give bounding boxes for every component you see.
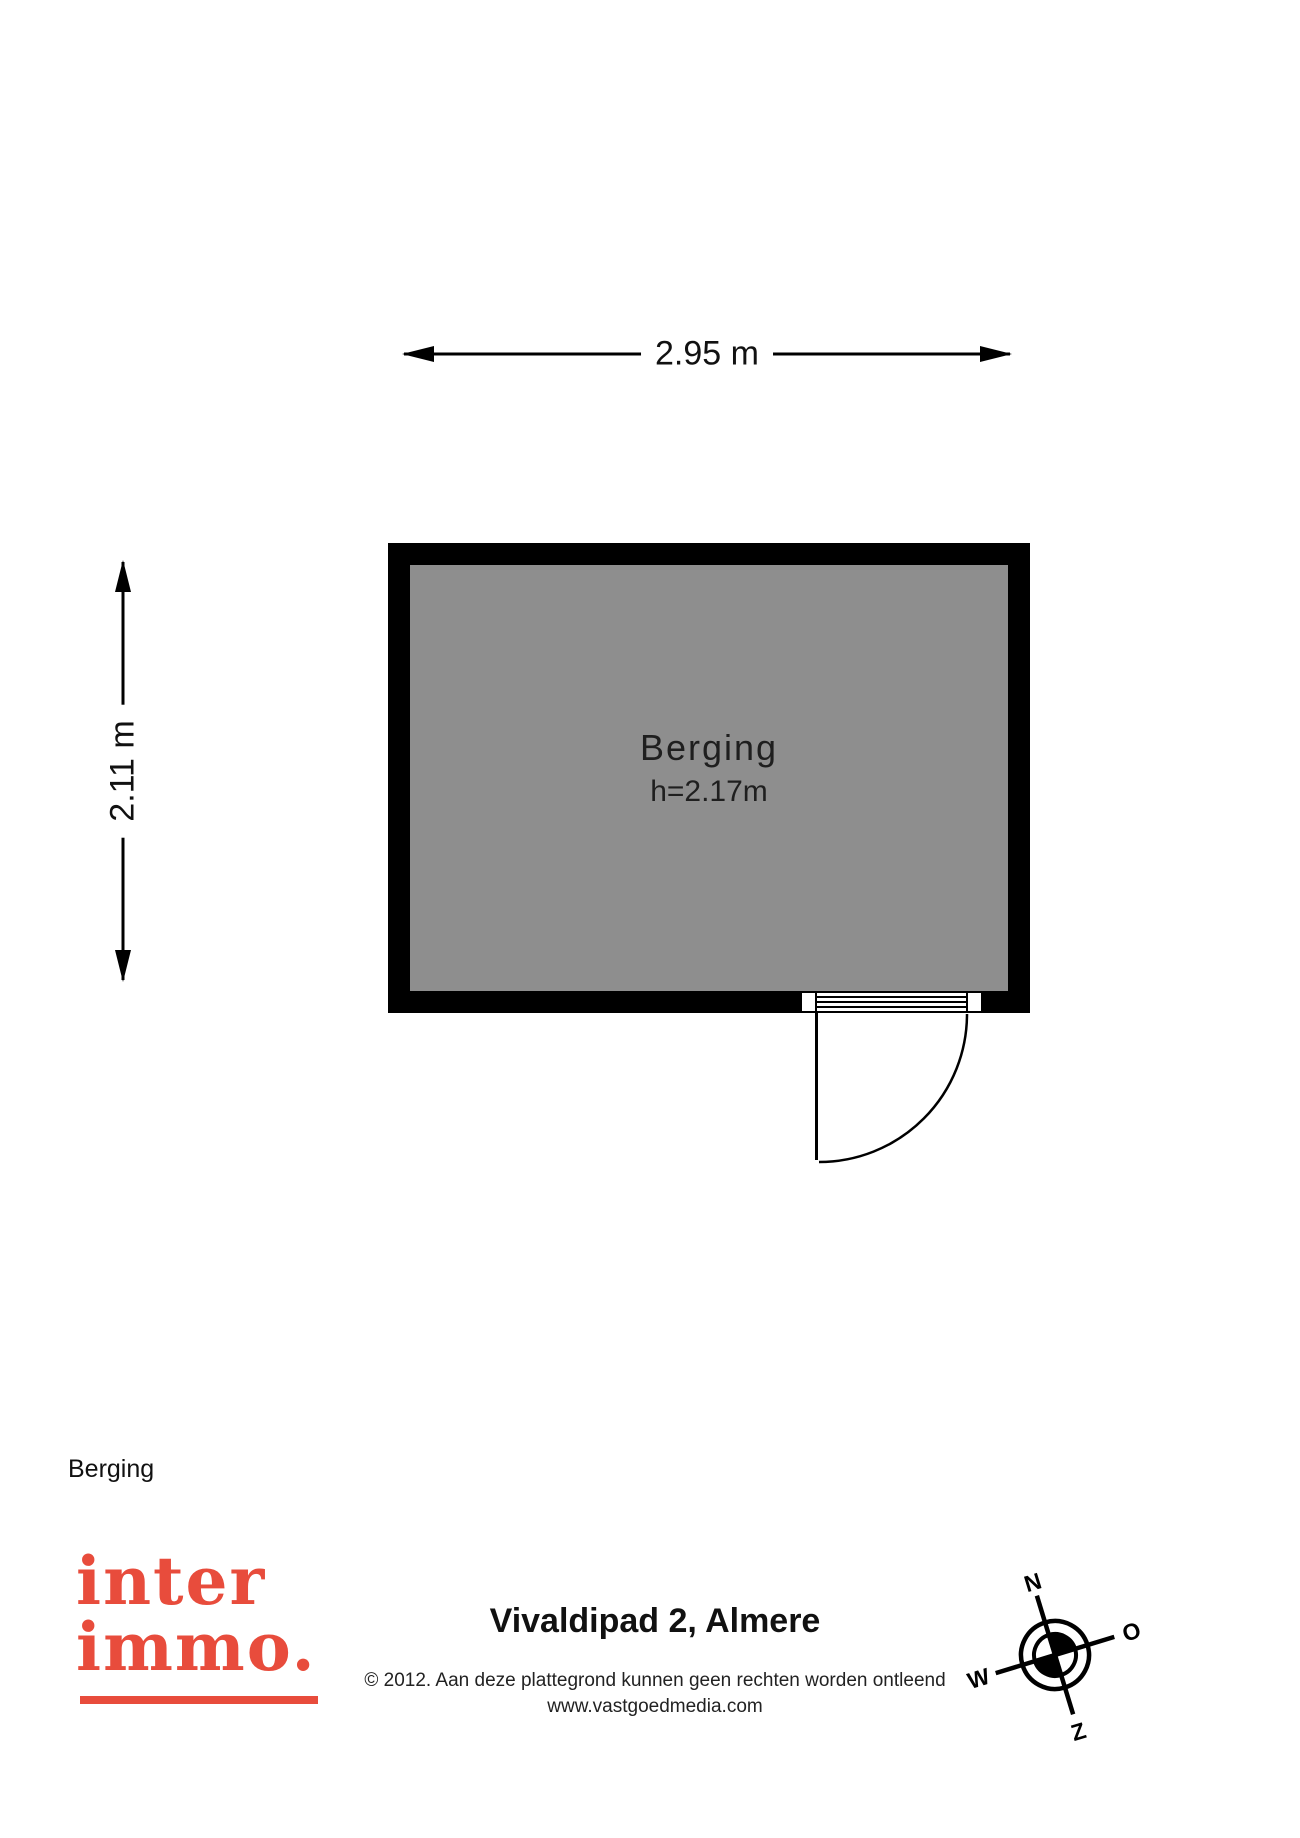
room-name: Berging — [640, 727, 778, 769]
compass-east-label: O — [1119, 1617, 1144, 1647]
arrowhead-up-icon — [115, 560, 131, 592]
compass-west-label: W — [964, 1663, 993, 1694]
floorplan-page: 2.95 m 2.11 m Berging h=2.17m Berging in… — [0, 0, 1300, 1838]
arrowhead-down-icon — [115, 950, 131, 982]
logo-line2: immo. — [76, 1614, 318, 1680]
door-swing-arc — [817, 1012, 970, 1164]
compass-north-label: N — [1021, 1567, 1045, 1597]
copyright-text: © 2012. Aan deze plattegrond kunnen geen… — [285, 1670, 1025, 1692]
logo-underline — [80, 1696, 318, 1704]
room-berging: Berging h=2.17m — [388, 543, 1030, 1013]
address-title: Vivaldipad 2, Almere — [325, 1602, 985, 1641]
width-dimension: 2.95 m — [400, 336, 1014, 372]
arrowhead-left-icon — [402, 346, 434, 362]
width-dimension-label: 2.95 m — [641, 335, 773, 374]
interimmo-logo: inter immo. — [76, 1548, 318, 1704]
website-text: www.vastgoedmedia.com — [285, 1696, 1025, 1718]
logo-line1: inter — [76, 1548, 318, 1614]
height-dimension: 2.11 m — [100, 558, 146, 984]
door-jamb-right — [966, 991, 983, 1013]
room-label-group: Berging h=2.17m — [640, 727, 778, 809]
floor-label: Berging — [68, 1455, 154, 1484]
arrowhead-right-icon — [980, 346, 1012, 362]
compass-south-label: Z — [1068, 1717, 1089, 1746]
door-jamb-left — [800, 991, 817, 1013]
door-threshold — [817, 991, 967, 1013]
compass-rose-icon: N O Z W — [955, 1553, 1155, 1763]
height-dimension-label: 2.11 m — [104, 704, 143, 837]
room-ceiling-height: h=2.17m — [640, 775, 778, 809]
